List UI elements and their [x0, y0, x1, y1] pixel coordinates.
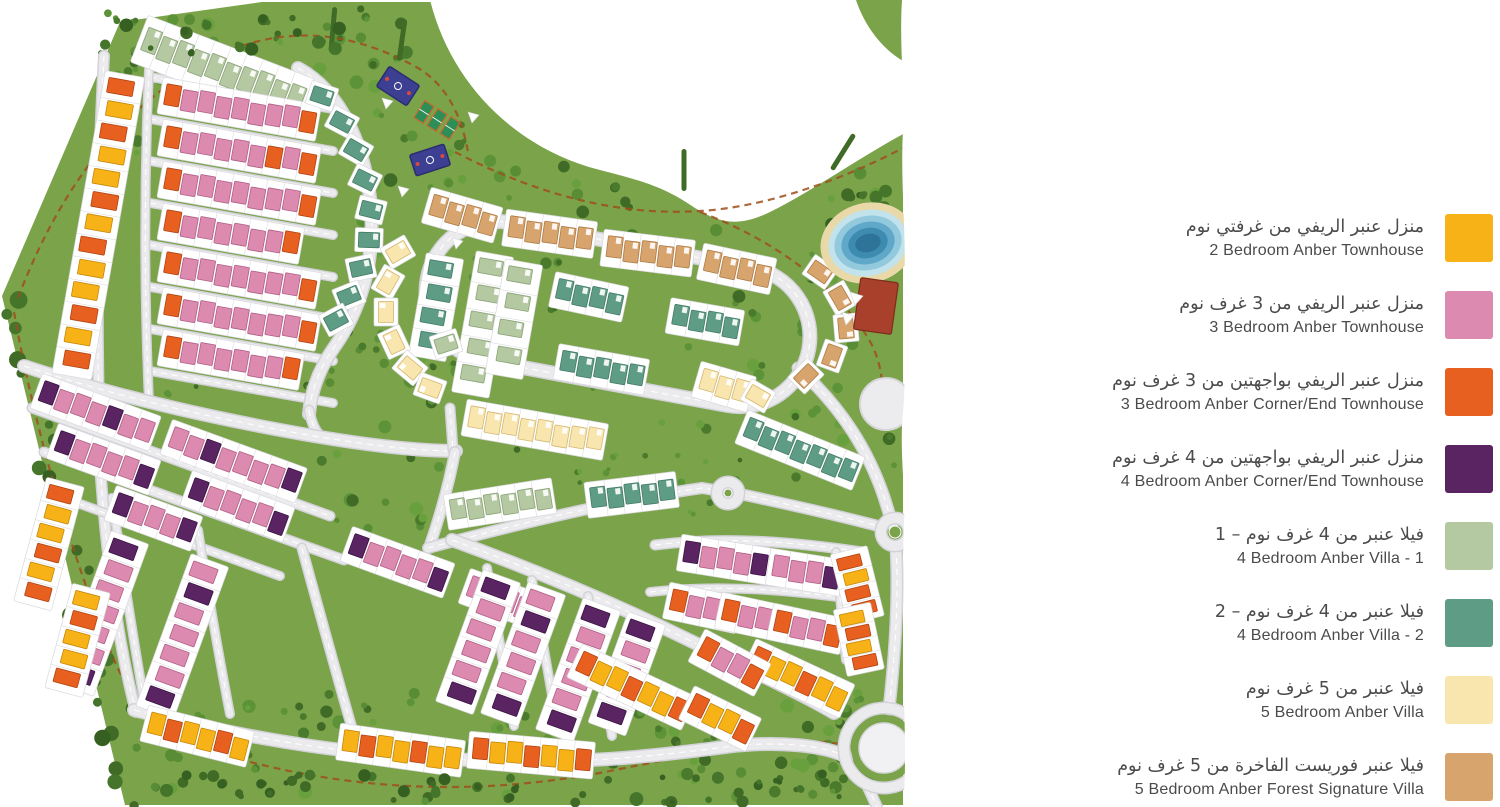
tree	[323, 23, 331, 31]
tree	[756, 779, 761, 784]
page-edge	[901, 0, 920, 807]
tree	[382, 498, 390, 506]
legend-item-label: فيلا عنبر فوريست الفاخرة من 5 غرف نوم 5 …	[1117, 755, 1424, 800]
tree	[409, 688, 420, 699]
tree	[670, 799, 675, 804]
tree	[577, 480, 582, 485]
tree	[379, 113, 384, 118]
legend-item-label: فيلا عنبر من 4 غرف نوم – 1 4 Bedroom Anb…	[1215, 524, 1424, 569]
tree	[9, 322, 22, 335]
tree	[604, 776, 612, 784]
legend-color-swatch	[1445, 291, 1493, 339]
tree	[792, 413, 799, 420]
tree	[326, 378, 335, 387]
legend-label-english: 2 Bedroom Anber Townhouse	[1186, 241, 1424, 261]
tree	[690, 758, 697, 765]
tree	[854, 697, 860, 703]
tree	[758, 362, 765, 369]
tree	[685, 343, 693, 351]
tree	[847, 193, 856, 202]
tree	[1, 309, 12, 320]
villa-unit	[355, 228, 384, 253]
tree	[802, 721, 814, 733]
tree	[267, 790, 273, 796]
tree	[329, 368, 335, 374]
tree	[773, 778, 779, 784]
tree	[630, 792, 644, 806]
tree	[705, 796, 712, 803]
legend-item: فيلا عنبر من 4 غرف نوم – 1 4 Bedroom Anb…	[1112, 522, 1493, 570]
tree	[421, 797, 429, 805]
tree	[775, 759, 784, 768]
tree	[431, 786, 440, 795]
tree	[506, 793, 515, 802]
tree	[245, 42, 258, 55]
villa-unit	[374, 298, 398, 326]
tree	[120, 18, 134, 32]
tree	[293, 28, 302, 37]
tree	[511, 786, 519, 794]
tree	[839, 774, 848, 783]
tree	[289, 15, 295, 21]
legend-item: منزل عنبر الريفي بواجهتين من 3 غرف نوم 3…	[1112, 368, 1493, 416]
tree	[832, 383, 843, 394]
legend-item: منزل عنبر الريفي بواجهتين من 4 غرف نوم 4…	[1112, 445, 1493, 493]
tree	[160, 785, 169, 794]
tree	[260, 780, 266, 786]
tree	[258, 14, 267, 23]
legend-item: فيلا عنبر فوريست الفاخرة من 5 غرف نوم 5 …	[1112, 753, 1493, 801]
tree	[277, 39, 284, 46]
legend-label-arabic: منزل عنبر الريفي بواجهتين من 3 غرف نوم	[1112, 370, 1424, 393]
tree	[823, 725, 834, 736]
tree	[572, 189, 583, 200]
tree	[109, 761, 124, 776]
tree	[859, 191, 867, 199]
tree	[187, 18, 192, 23]
tree	[769, 786, 781, 798]
legend-item-label: فيلا عنبر من 4 غرف نوم – 2 4 Bedroom Anb…	[1215, 601, 1424, 646]
tree	[577, 469, 582, 474]
tree	[114, 17, 121, 24]
tree	[148, 45, 154, 51]
tree	[796, 759, 809, 772]
legend-item: فيلا عنبر من 4 غرف نوم – 2 4 Bedroom Anb…	[1112, 599, 1493, 647]
legend-label-english: 5 Bedroom Anber Villa	[1246, 703, 1424, 723]
tree	[434, 462, 444, 472]
tree	[614, 453, 618, 457]
tree	[836, 794, 841, 799]
tree	[358, 769, 371, 782]
tree	[199, 772, 207, 780]
legend-label-arabic: فيلا عنبر من 4 غرف نوم – 2	[1215, 601, 1424, 624]
tree	[329, 42, 342, 55]
tree	[458, 175, 467, 184]
tree	[203, 19, 208, 24]
tree	[319, 38, 326, 45]
tree	[506, 195, 512, 201]
tree	[885, 187, 891, 193]
tree	[692, 774, 700, 782]
tree	[134, 150, 140, 156]
legend-label-english: 3 Bedroom Anber Townhouse	[1179, 318, 1424, 338]
tree	[356, 33, 366, 43]
tree	[579, 791, 586, 798]
tree	[813, 405, 821, 413]
legend-label-arabic: منزل عنبر الريفي من 3 غرف نوم	[1179, 293, 1424, 316]
legend-color-swatch	[1445, 445, 1493, 493]
legend-item-label: منزل عنبر الريفي من غرفتي نوم 2 Bedroom …	[1186, 216, 1424, 261]
tree	[855, 689, 861, 695]
tree	[347, 494, 359, 506]
tree	[870, 191, 883, 204]
legend-color-swatch	[1445, 599, 1493, 647]
tree	[182, 770, 192, 780]
tree	[572, 179, 581, 188]
legend-item: فيلا عنبر من 5 غرف نوم 5 Bedroom Anber V…	[1112, 676, 1493, 724]
tree	[300, 713, 307, 720]
tree	[173, 753, 183, 763]
tree	[164, 390, 171, 397]
legend-color-swatch	[1445, 676, 1493, 724]
legend-item: منزل عنبر الريفي من 3 غرف نوم 3 Bedroom …	[1112, 291, 1493, 339]
tree	[398, 785, 410, 797]
tree	[336, 26, 341, 31]
tree	[373, 346, 380, 353]
legend-label-english: 4 Bedroom Anber Corner/End Townhouse	[1112, 472, 1424, 492]
tree	[430, 781, 436, 787]
tree	[317, 456, 327, 466]
tree	[245, 705, 251, 711]
masterplan-map	[0, 0, 920, 807]
tree	[514, 446, 521, 453]
tree	[450, 360, 456, 366]
tree	[655, 725, 662, 732]
tree	[828, 195, 835, 202]
legend-item-label: منزل عنبر الريفي بواجهتين من 3 غرف نوم 3…	[1112, 370, 1424, 415]
tree	[748, 309, 756, 317]
tree	[510, 166, 521, 177]
tree	[238, 794, 244, 800]
tree	[780, 699, 794, 713]
tree	[84, 565, 93, 574]
tree	[675, 453, 680, 458]
tree	[712, 772, 724, 784]
tree	[738, 458, 743, 463]
tree	[357, 5, 364, 12]
tree	[391, 797, 397, 803]
tree	[93, 698, 102, 707]
tree	[251, 766, 258, 773]
tree	[830, 788, 835, 793]
tree	[558, 161, 570, 173]
tree	[474, 783, 481, 790]
tree	[642, 453, 648, 459]
tree	[444, 179, 453, 188]
tree	[384, 173, 398, 187]
legend-color-swatch	[1445, 753, 1493, 801]
tree	[418, 514, 427, 523]
legend-item-label: منزل عنبر الريفي من 3 غرف نوم 3 Bedroom …	[1179, 293, 1424, 338]
tree	[710, 224, 722, 236]
tree	[298, 727, 309, 738]
tree	[407, 698, 415, 706]
tree	[797, 785, 804, 792]
legend-label-arabic: منزل عنبر الريفي من غرفتي نوم	[1186, 216, 1424, 239]
tree	[611, 182, 620, 191]
tree	[496, 725, 503, 732]
tree	[660, 775, 666, 781]
tree	[364, 16, 370, 22]
tree	[296, 771, 303, 778]
tree	[697, 765, 705, 773]
legend-color-swatch	[1445, 214, 1493, 262]
tree	[407, 130, 418, 141]
tree	[358, 343, 366, 351]
tree	[180, 27, 188, 35]
tree	[556, 260, 562, 266]
tree	[188, 50, 195, 57]
roundabout	[717, 482, 739, 504]
legend-item-label: فيلا عنبر من 5 غرف نوم 5 Bedroom Anber V…	[1246, 678, 1424, 723]
tree	[100, 39, 110, 49]
legend: منزل عنبر الريفي من غرفتي نوم 2 Bedroom …	[1112, 214, 1493, 807]
tree	[506, 774, 515, 783]
legend-item: منزل عنبر الريفي من غرفتي نوم 2 Bedroom …	[1112, 214, 1493, 262]
tree	[696, 420, 705, 429]
tree	[828, 762, 839, 773]
tree	[281, 708, 288, 715]
tree	[194, 384, 199, 389]
tree	[274, 30, 281, 37]
tree	[94, 730, 110, 746]
tree	[369, 61, 377, 69]
masterplan-page: منزل عنبر الريفي من غرفتي نوم 2 Bedroom …	[0, 0, 1500, 807]
tree	[361, 702, 367, 708]
tree	[217, 780, 226, 789]
tree	[295, 703, 303, 711]
legend-label-english: 3 Bedroom Anber Corner/End Townhouse	[1112, 395, 1424, 415]
legend-label-arabic: فيلا عنبر من 4 غرف نوم – 1	[1215, 524, 1424, 547]
legend-label-arabic: منزل عنبر الريفي بواجهتين من 4 غرف نوم	[1112, 447, 1424, 470]
tree	[133, 18, 139, 24]
tree	[333, 450, 342, 459]
tree	[370, 719, 377, 726]
tree	[235, 41, 241, 47]
legend-color-swatch	[1445, 368, 1493, 416]
tree	[409, 502, 423, 516]
tree	[736, 767, 746, 777]
tree	[484, 155, 496, 167]
tree	[104, 9, 112, 17]
tree	[791, 472, 800, 481]
tree	[681, 768, 693, 780]
tree	[317, 722, 326, 731]
tree	[658, 419, 665, 426]
tree	[733, 290, 746, 303]
tree	[287, 776, 297, 786]
tree	[808, 790, 817, 799]
tree	[579, 210, 584, 215]
tree	[687, 510, 691, 514]
tree	[305, 770, 316, 781]
legend-item-label: منزل عنبر الريفي بواجهتين من 4 غرف نوم 4…	[1112, 447, 1424, 492]
tree	[151, 783, 159, 791]
legend-label-english: 4 Bedroom Anber Villa - 2	[1215, 626, 1424, 646]
legend-color-swatch	[1445, 522, 1493, 570]
tree	[378, 420, 391, 433]
legend-label-arabic: فيلا عنبر فوريست الفاخرة من 5 غرف نوم	[1117, 755, 1424, 778]
tree	[133, 744, 141, 752]
tree	[818, 770, 827, 779]
tree	[300, 781, 311, 792]
tree	[207, 770, 219, 782]
legend-label-english: 5 Bedroom Anber Forest Signature Villa	[1117, 780, 1424, 800]
tree	[45, 421, 53, 429]
legend-label-arabic: فيلا عنبر من 5 غرف نوم	[1246, 678, 1424, 701]
tree	[891, 462, 897, 468]
tree	[887, 434, 893, 440]
tree	[454, 140, 464, 150]
tree	[439, 773, 451, 785]
legend-label-english: 4 Bedroom Anber Villa - 1	[1215, 549, 1424, 569]
tree	[320, 705, 332, 717]
tree	[133, 67, 138, 72]
tree	[430, 364, 437, 371]
tree	[107, 774, 122, 789]
tree	[350, 75, 364, 89]
tree	[325, 690, 334, 699]
tree	[703, 459, 709, 465]
tree	[675, 741, 680, 746]
tree	[334, 518, 339, 523]
tree	[747, 359, 760, 372]
tree	[380, 359, 389, 368]
tree	[603, 470, 609, 476]
